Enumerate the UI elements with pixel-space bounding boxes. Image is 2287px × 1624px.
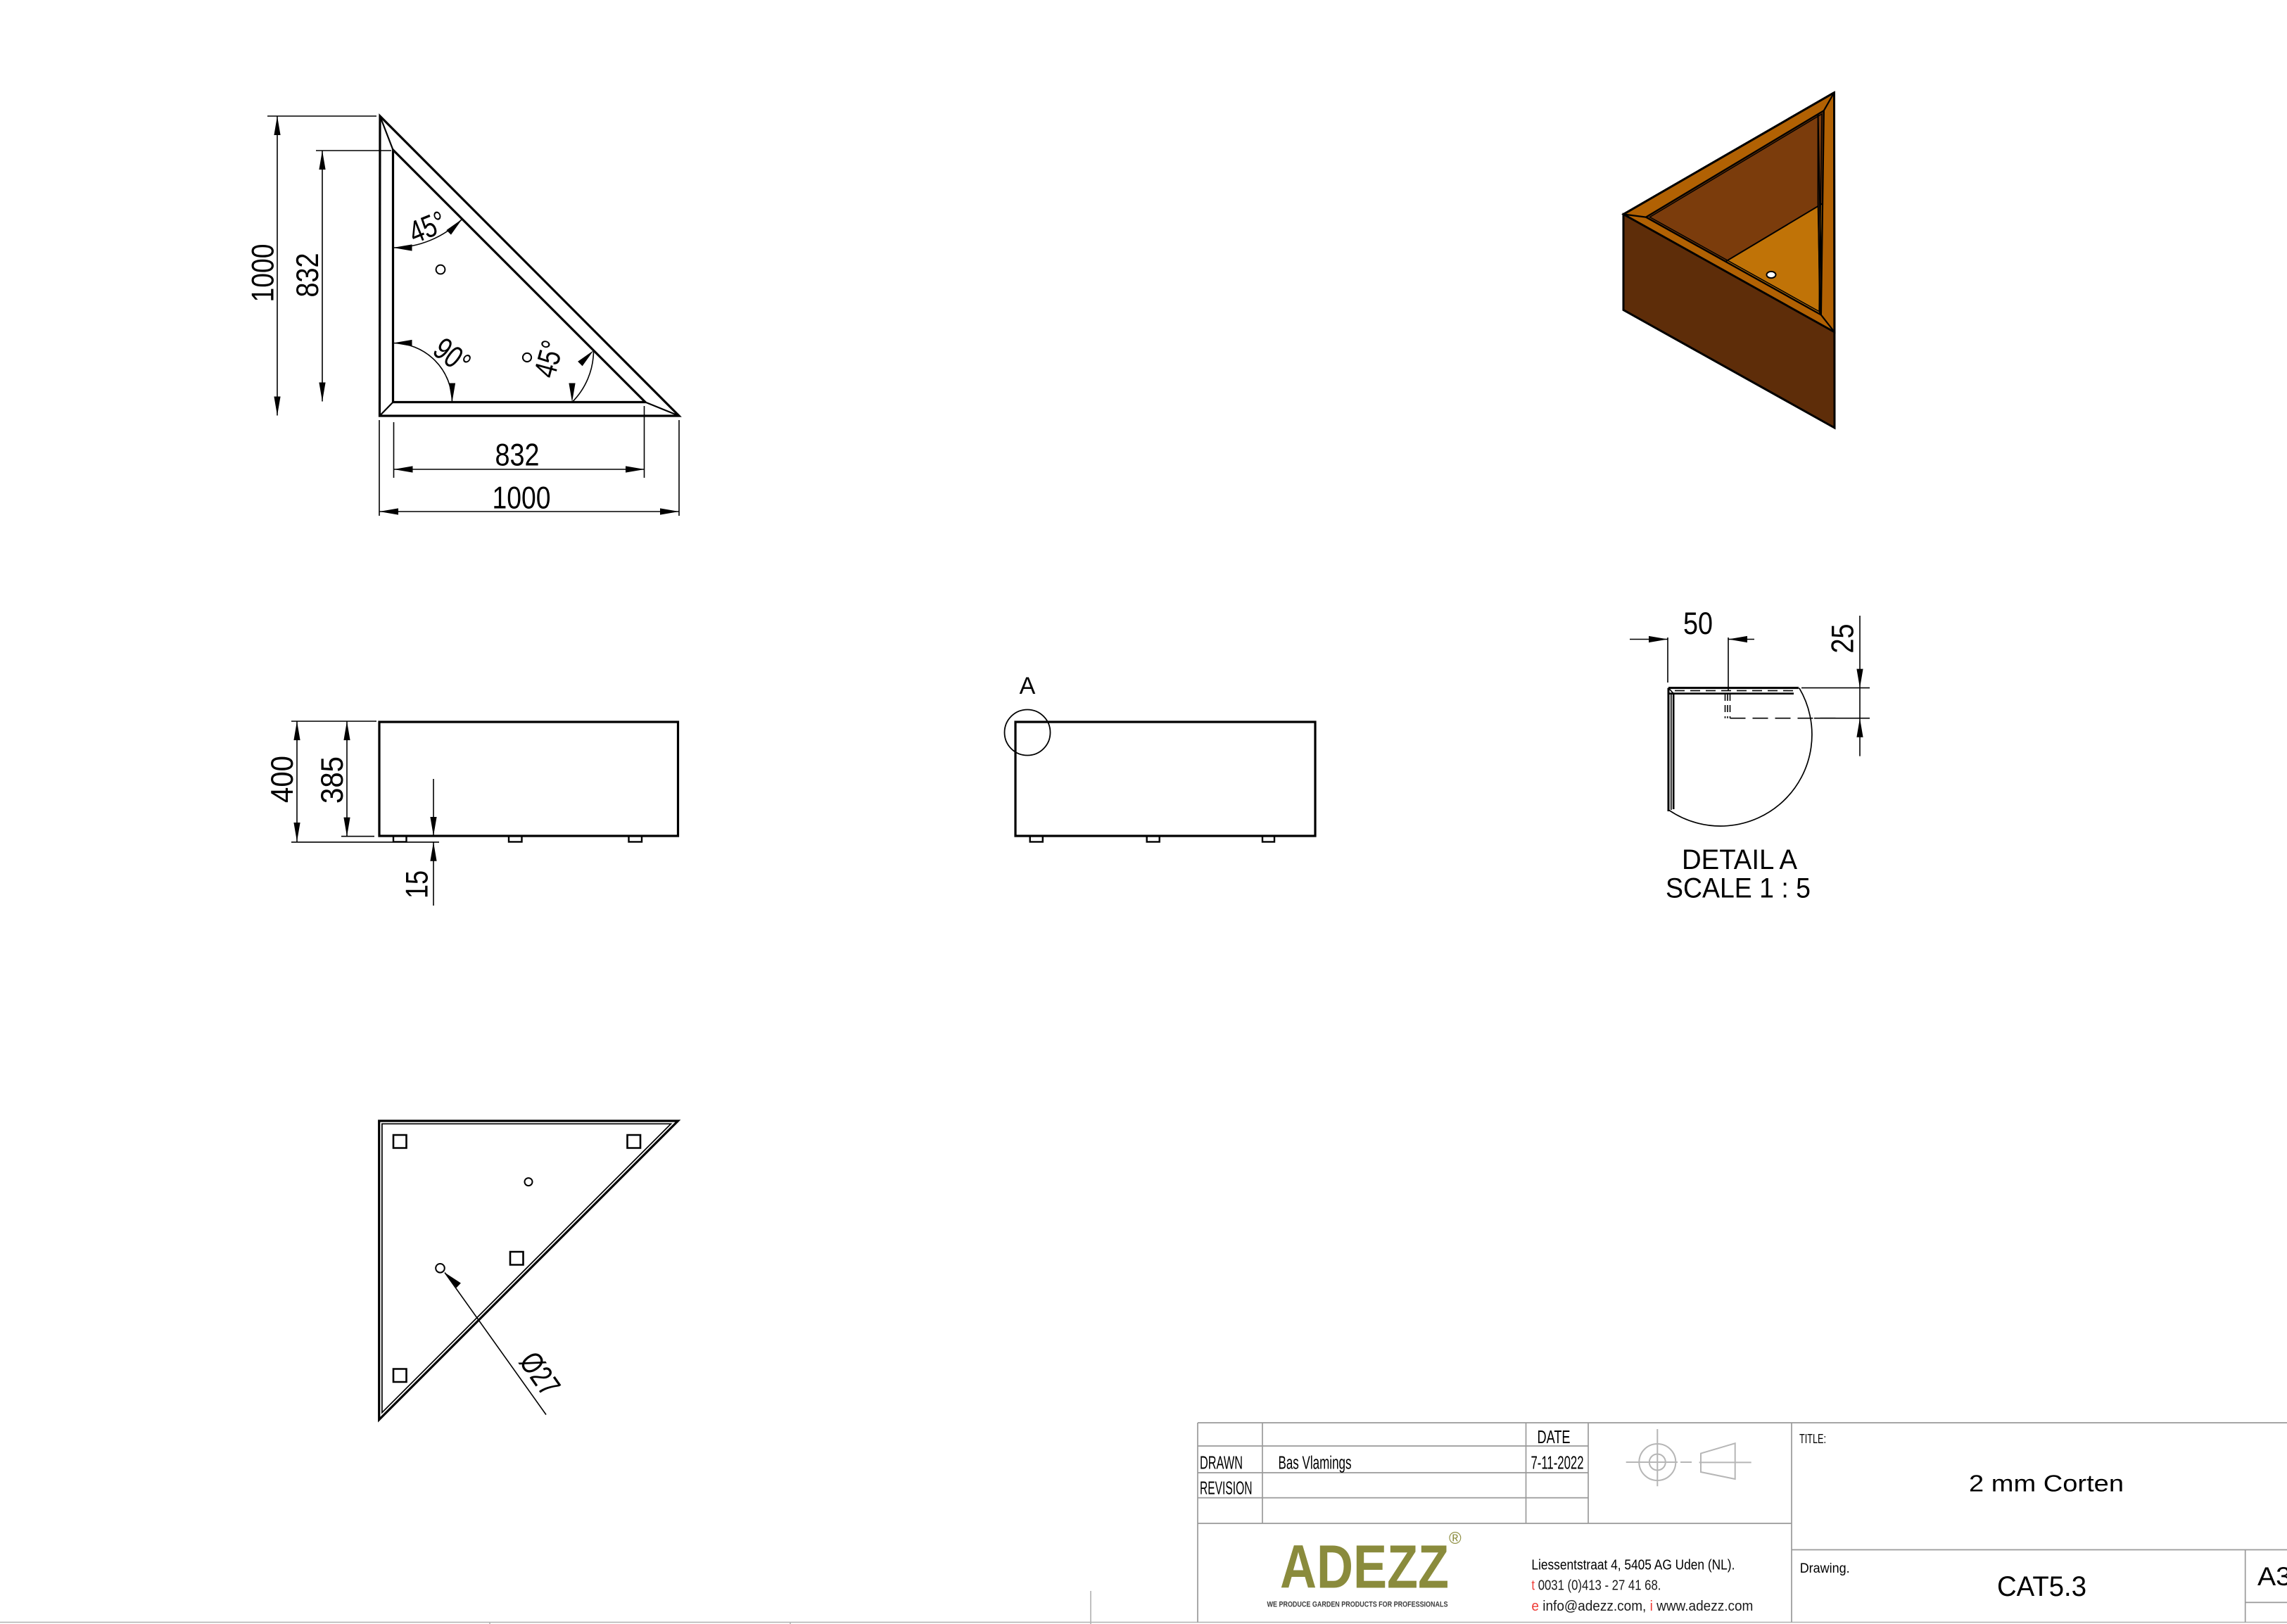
svg-text:15: 15: [400, 870, 435, 899]
svg-text:Drawing.: Drawing.: [1800, 1561, 1850, 1576]
svg-text:7-11-2022: 7-11-2022: [1531, 1454, 1584, 1473]
svg-text:1000: 1000: [246, 244, 281, 303]
svg-text:REVISION: REVISION: [1200, 1479, 1253, 1499]
svg-text:DATE: DATE: [1538, 1428, 1571, 1447]
svg-text:SCALE 1 : 5: SCALE 1 : 5: [1666, 873, 1811, 903]
svg-text:CAT5.3: CAT5.3: [1997, 1571, 2086, 1602]
svg-text:832: 832: [495, 438, 540, 473]
svg-text:TITLE:: TITLE:: [1799, 1432, 1826, 1446]
svg-text:25: 25: [1825, 624, 1860, 654]
svg-text:DRAWN: DRAWN: [1200, 1454, 1243, 1473]
svg-text:e info@adezz.com, i www.adezz.: e info@adezz.com, i www.adezz.com: [1531, 1599, 1753, 1614]
svg-text:ADEZZ: ADEZZ: [1280, 1533, 1449, 1601]
svg-text:50: 50: [1683, 607, 1713, 641]
svg-text:832: 832: [291, 253, 325, 298]
svg-text:DETAIL A: DETAIL A: [1682, 844, 1797, 875]
svg-text:A: A: [1020, 673, 1036, 699]
svg-text:t 0031 (0)413 - 27 41 68.: t 0031 (0)413 - 27 41 68.: [1531, 1578, 1661, 1594]
svg-text:A3: A3: [2257, 1562, 2287, 1591]
svg-text:WE PRODUCE GARDEN PRODUCTS FOR: WE PRODUCE GARDEN PRODUCTS FOR PROFESSIO…: [1267, 1600, 1448, 1609]
svg-text:1000: 1000: [493, 481, 551, 516]
svg-text:Bas Vlamings: Bas Vlamings: [1279, 1454, 1352, 1473]
svg-text:400: 400: [265, 756, 300, 803]
svg-text:Liessentstraat 4, 5405 AG Uden: Liessentstraat 4, 5405 AG Uden (NL).: [1531, 1558, 1735, 1573]
svg-text:®: ®: [1449, 1529, 1462, 1548]
svg-text:2 mm Corten: 2 mm Corten: [1969, 1471, 2124, 1497]
svg-text:385: 385: [315, 756, 350, 804]
